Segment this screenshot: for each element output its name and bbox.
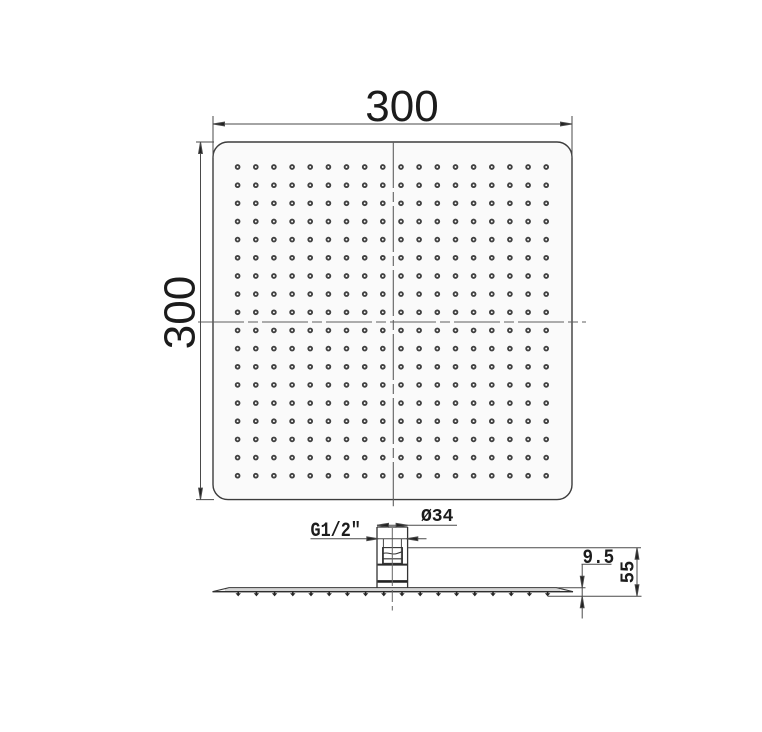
svg-text:300: 300: [156, 276, 205, 349]
svg-text:9.5: 9.5: [583, 546, 615, 569]
svg-text:55: 55: [618, 561, 640, 584]
svg-text:Ø34: Ø34: [421, 507, 454, 527]
svg-text:G1/2": G1/2": [311, 520, 361, 543]
svg-text:300: 300: [365, 82, 438, 131]
